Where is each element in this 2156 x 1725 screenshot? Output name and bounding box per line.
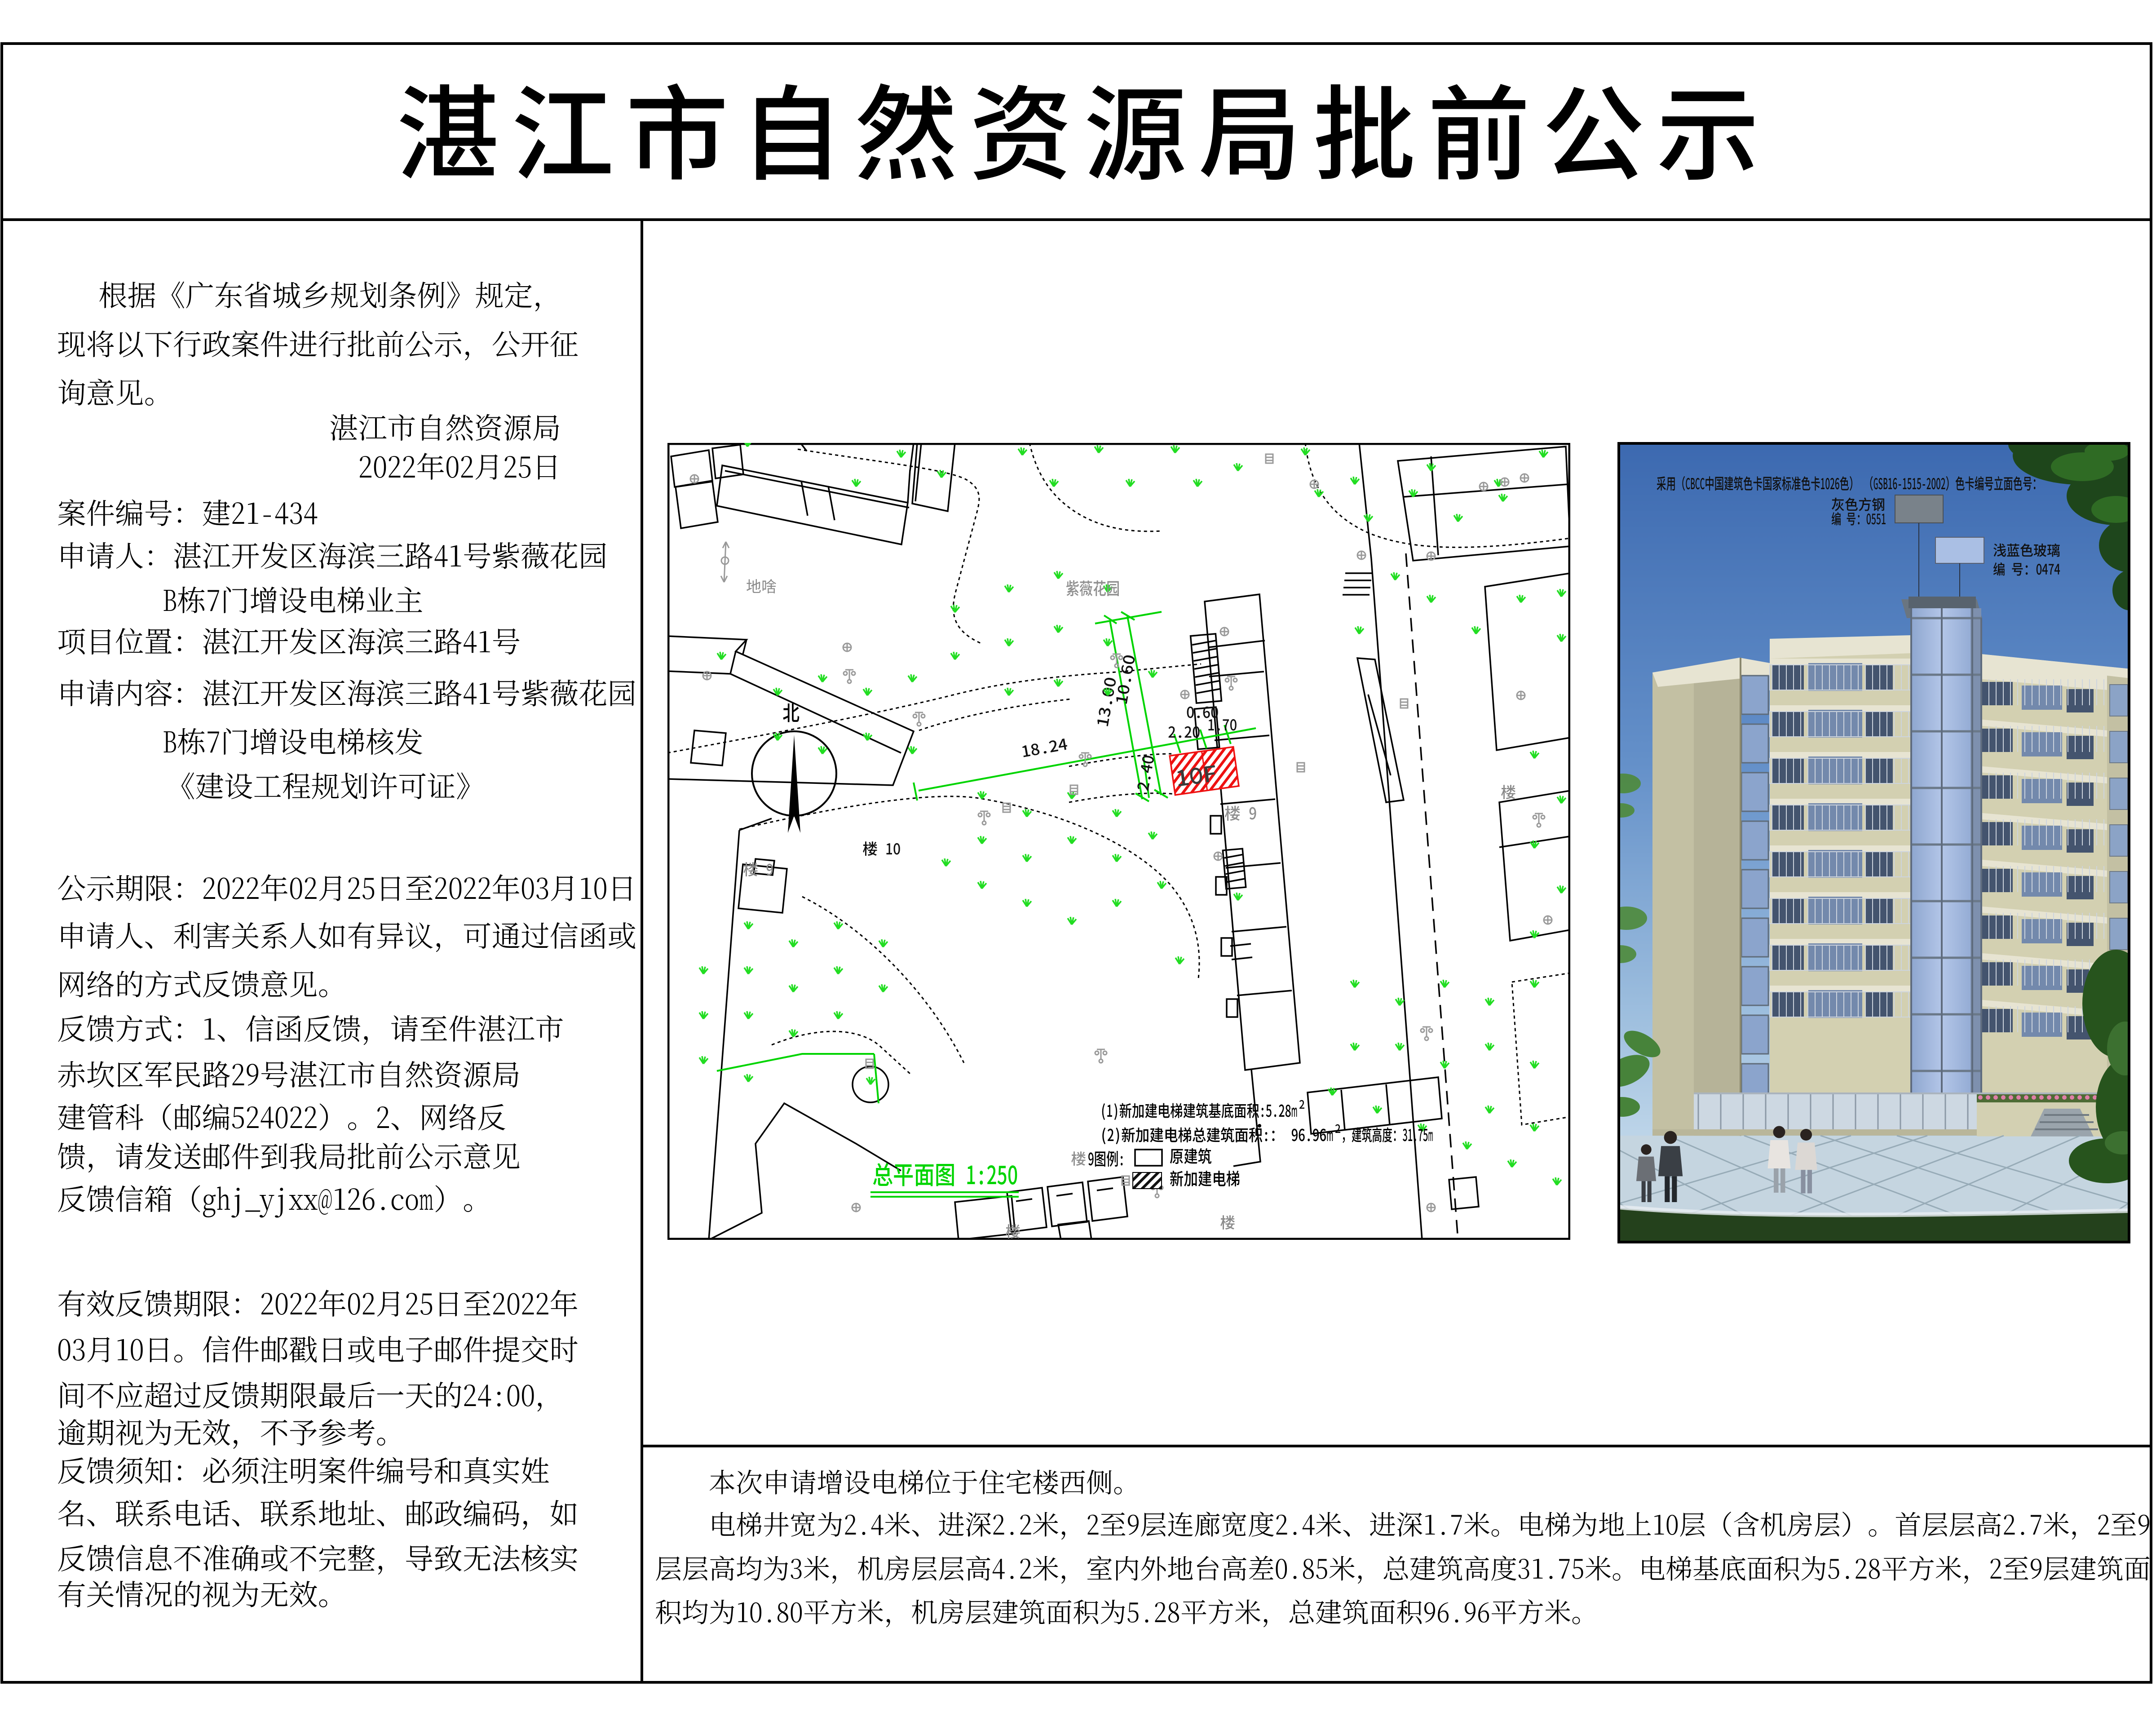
svg-text:楼: 楼 [1071,1147,1086,1169]
svg-text:新加建电梯: 新加建电梯 [1170,1165,1240,1190]
svg-text:(1)新加建电梯建筑基底面积:5.28m: (1)新加建电梯建筑基底面积:5.28m [1100,1098,1298,1122]
svg-text:(2)新加建电梯总建筑面积:： 96.96m: (2)新加建电梯总建筑面积:： 96.96m [1100,1123,1334,1146]
svg-text:，建筑高度：31.75m: ，建筑高度：31.75m [1341,1123,1433,1146]
svg-text:采用（CBCC中国建筑色卡国家标准色卡1026色） （GSB: 采用（CBCC中国建筑色卡国家标准色卡1026色） （GSB16-1515-20… [1657,472,2042,494]
svg-text:总平面图 1:250: 总平面图 1:250 [872,1155,1018,1192]
svg-text:楼: 楼 [1005,1220,1021,1240]
svg-text:北: 北 [782,697,800,727]
svg-text:紫薇花园: 紫薇花园 [1066,575,1120,600]
svg-text:楼: 楼 [1220,1211,1235,1233]
svg-text:编 号：0474: 编 号：0474 [1993,558,2060,579]
svg-text:1OF: 1OF [1173,756,1219,793]
svg-text:2.20: 2.20 [1168,720,1200,742]
svg-text:楼 9: 楼 9 [1224,801,1257,824]
svg-text:编 号：0551: 编 号：0551 [1831,508,1886,529]
svg-text:地啥: 地啥 [746,575,777,597]
svg-text:2: 2 [1335,1120,1341,1137]
svg-text:9图例:: 9图例: [1088,1146,1125,1170]
svg-text:原建筑: 原建筑 [1170,1143,1212,1168]
svg-text:浅蓝色玻璃: 浅蓝色玻璃 [1993,540,2060,560]
svg-text:楼 9: 楼 9 [743,858,773,880]
svg-text:楼: 楼 [1501,780,1516,802]
svg-text:2: 2 [1299,1096,1305,1112]
svg-text:楼 10: 楼 10 [862,837,901,859]
svg-text:1.70: 1.70 [1207,713,1237,735]
